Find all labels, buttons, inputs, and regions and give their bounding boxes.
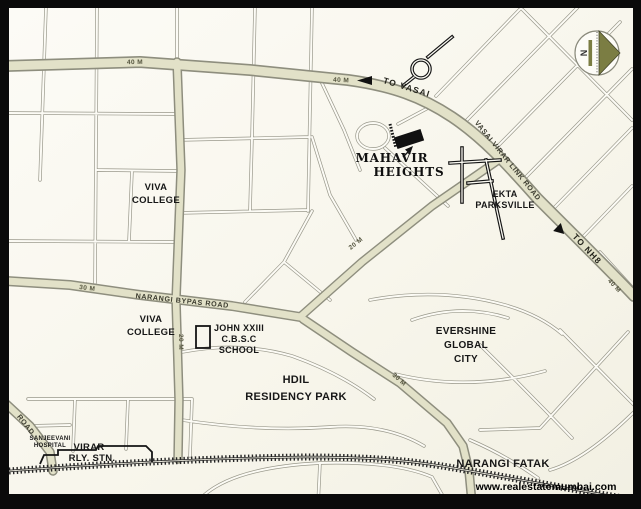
mahavir-heights-label: MAHAVIR	[356, 151, 429, 165]
site-location-map: 40 M 40 M TO VASAI VASAI VIRAR LINK ROAD…	[0, 0, 641, 509]
road-width-label: 40 M	[333, 77, 349, 85]
hdil-residency-park-label: HDIL	[283, 374, 310, 386]
virar-station-label: RLY. STN.	[69, 453, 116, 464]
virar-station-label: VIRAR	[73, 442, 104, 453]
john-school-label: SCHOOL	[219, 345, 260, 355]
narangi-fatak-label: NARANGI FATAK	[456, 458, 549, 470]
viva-college-north-label: COLLEGE	[132, 195, 180, 206]
evershine-global-city-label: CITY	[454, 354, 478, 365]
watermark-link[interactable]: www.realestatemumbai.com	[475, 481, 617, 493]
hdil-residency-park-label: RESIDENCY PARK	[245, 391, 347, 403]
ekta-parksville-label: PARKSVILLE	[475, 200, 534, 210]
compass-north-label: N	[579, 50, 589, 57]
sanjeevani-hospital-label: SANJEEVANI	[30, 436, 71, 442]
ekta-parksville-label: EKTA	[492, 189, 517, 199]
evershine-global-city-label: EVERSHINE	[436, 326, 497, 337]
john-school-label: JOHN XXIII	[214, 323, 264, 333]
john-school-label: C.B.S.C	[221, 334, 256, 344]
viva-college-south-label: VIVA	[140, 314, 163, 325]
sanjeevani-hospital-label: HOSPITAL	[34, 443, 66, 449]
viva-college-north-label: VIVA	[145, 182, 168, 193]
map-frame: 40 M 40 M TO VASAI VASAI VIRAR LINK ROAD…	[0, 0, 641, 509]
evershine-global-city-label: GLOBAL	[444, 340, 488, 351]
compass-rose: N	[575, 31, 620, 75]
road-width-label: 20 M	[177, 334, 184, 350]
mahavir-heights-label: HEIGHTS	[374, 165, 445, 179]
road-width-label: 40 M	[127, 59, 143, 66]
viva-college-south-label: COLLEGE	[127, 327, 175, 338]
